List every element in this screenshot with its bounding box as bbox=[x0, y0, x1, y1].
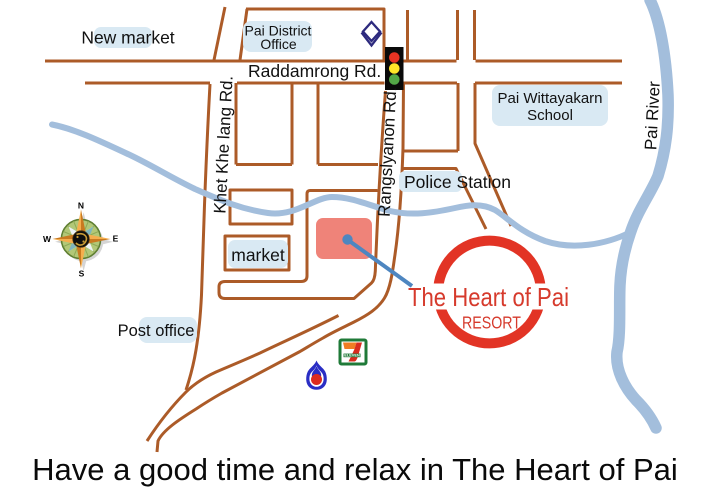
svg-text:W: W bbox=[43, 234, 52, 244]
svg-text:School: School bbox=[527, 107, 573, 124]
svg-text:Police Station: Police Station bbox=[404, 172, 511, 192]
svg-text:Pai Wittayakarn: Pai Wittayakarn bbox=[497, 90, 602, 107]
svg-text:N: N bbox=[78, 201, 84, 211]
svg-text:Have a good time and relax in: Have a good time and relax in The Heart … bbox=[32, 452, 678, 487]
svg-text:Rangslyanon Rd.: Rangslyanon Rd. bbox=[375, 86, 401, 217]
svg-text:Khet Khe lang Rd.: Khet Khe lang Rd. bbox=[210, 75, 236, 214]
svg-text:Office: Office bbox=[260, 36, 297, 52]
svg-text:S: S bbox=[79, 269, 85, 279]
svg-text:Raddamrong Rd.: Raddamrong Rd. bbox=[248, 61, 381, 81]
svg-text:RESORT: RESORT bbox=[462, 313, 521, 333]
svg-text:E: E bbox=[113, 234, 119, 244]
svg-text:Pai River: Pai River bbox=[641, 80, 664, 150]
svg-text:ELEVEN: ELEVEN bbox=[344, 354, 360, 358]
svg-text:The Heart of Pai: The Heart of Pai bbox=[408, 282, 569, 312]
svg-text:market: market bbox=[231, 245, 285, 265]
svg-text:Post office: Post office bbox=[118, 322, 195, 340]
svg-text:New market: New market bbox=[81, 28, 174, 48]
